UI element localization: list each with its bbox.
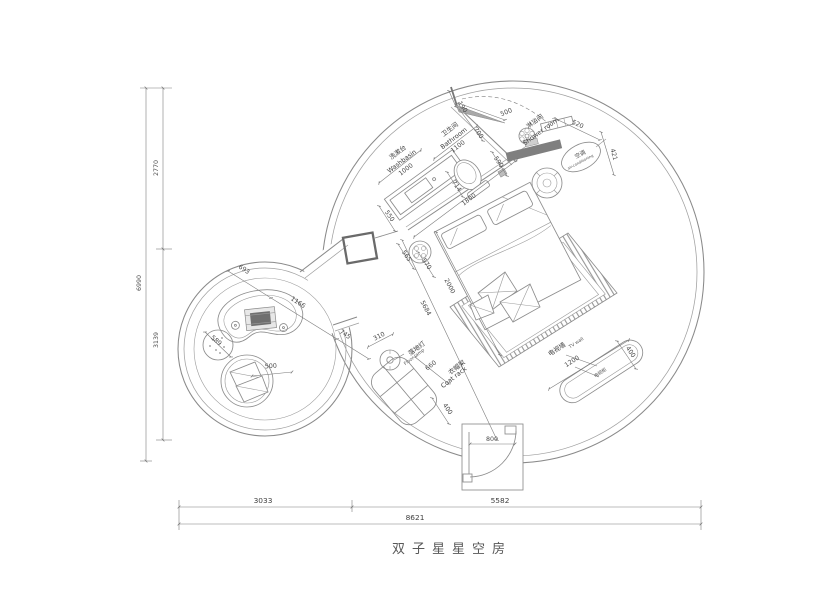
- lounge-rug-circle: [194, 278, 336, 420]
- dim-1800: 1800: [461, 192, 478, 207]
- laptop-icon: [245, 307, 277, 331]
- door-hinge-block: [505, 426, 516, 434]
- dim-693: 693: [237, 264, 251, 276]
- dim-570: 570: [420, 257, 433, 271]
- dim-700: 700: [472, 126, 485, 140]
- dim-bottom-right: 5582: [491, 496, 510, 505]
- dim-421: 421: [608, 148, 618, 161]
- label-tv-wall-cn: 电视墙: [546, 340, 567, 358]
- dim-5684: 5684: [418, 300, 432, 317]
- niche-door-line: [375, 231, 398, 238]
- label-tv-cabinet: 电视柜: [592, 366, 608, 380]
- dim-left-bottom: 3139: [153, 332, 160, 348]
- dim-400-tv: 400: [624, 345, 637, 359]
- plan-title: 双子星星空房: [392, 541, 512, 557]
- dim-310: 310: [372, 331, 386, 343]
- dim-660: 660: [424, 359, 438, 372]
- floor-drain-icon: [532, 168, 562, 198]
- dim-520: 520: [571, 119, 585, 130]
- dim-500-door: 500: [500, 107, 514, 118]
- dim-2000: 2000: [442, 278, 456, 295]
- dim-bottom-total: 8621: [406, 513, 425, 522]
- dim-left-total: 6990: [136, 275, 143, 291]
- label-tv-wall-en: TV wall: [567, 336, 585, 351]
- dim-left-top: 2770: [153, 160, 160, 176]
- entrance-vestibule: [462, 424, 523, 490]
- dim-1200: 1200: [564, 354, 581, 369]
- dim-500-chair: 500: [265, 363, 277, 371]
- corridor-eraser: [302, 230, 370, 334]
- floor-plan: 6990 2770 3139 3033 5582 8621 190 700 50…: [0, 0, 837, 592]
- door-handle-block: [463, 474, 472, 482]
- floor-plan-sheet: 6990 2770 3139 3033 5582 8621 190 700 50…: [0, 0, 837, 592]
- dim-bottom-left: 3033: [254, 496, 273, 505]
- dim-589: 589: [209, 334, 223, 347]
- dim-400-coat: 400: [441, 402, 454, 416]
- dim-800: 800: [486, 436, 498, 443]
- door-frame-symbol: [498, 168, 507, 177]
- dim-1166: 1166: [289, 295, 306, 310]
